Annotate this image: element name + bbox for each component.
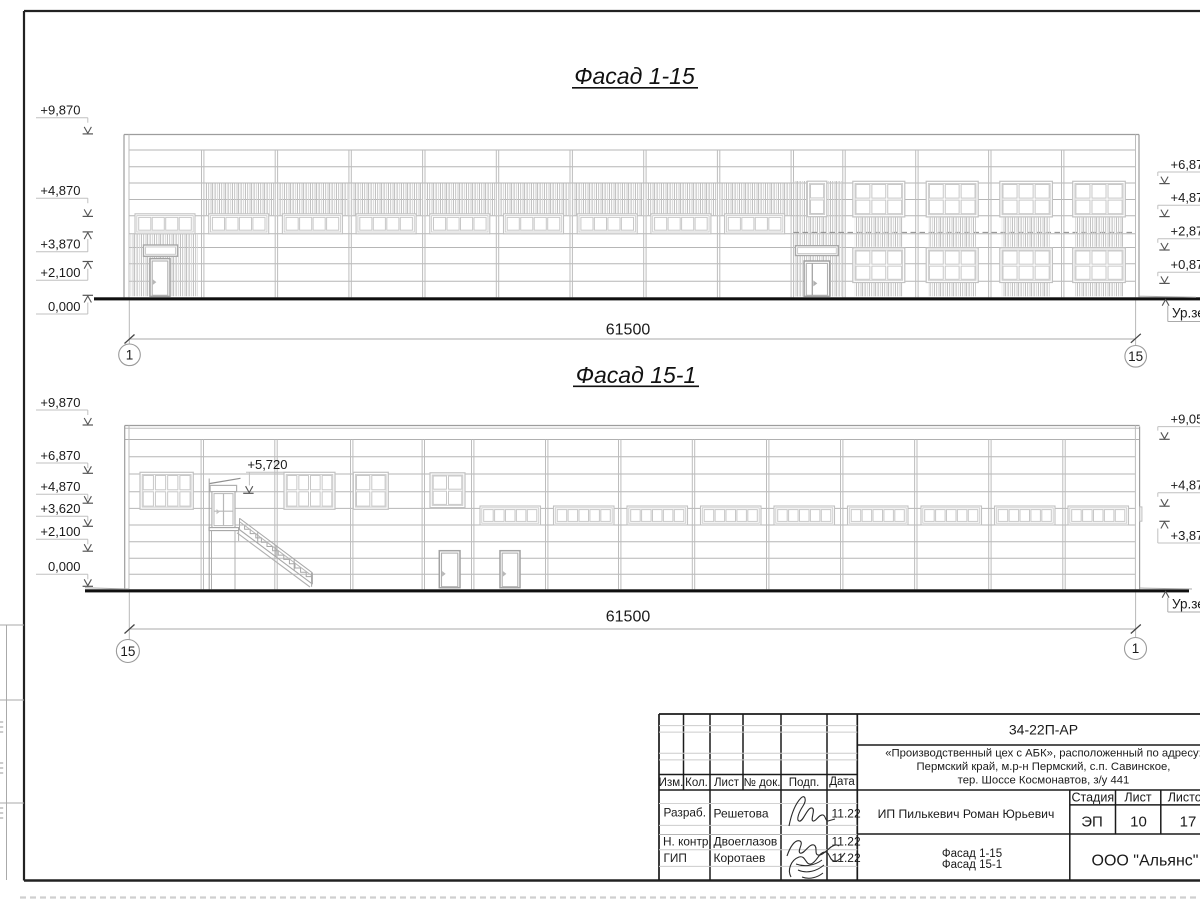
svg-text:Кол.: Кол.	[685, 777, 708, 789]
svg-text:+9,870: +9,870	[40, 395, 80, 410]
svg-text:+4,870: +4,870	[40, 183, 80, 198]
svg-text:+4,87: +4,87	[1171, 478, 1200, 493]
svg-text:Ур.зе: Ур.зе	[1172, 597, 1200, 612]
svg-text:Фасад 15-1: Фасад 15-1	[942, 859, 1002, 871]
svg-text:Фасад 1-15: Фасад 1-15	[574, 63, 695, 89]
svg-text:Дата: Дата	[829, 776, 855, 788]
svg-text:Н. контр.: Н. контр.	[663, 835, 712, 849]
svg-text:61500: 61500	[606, 322, 651, 339]
svg-text:ИП Пилькевич Роман Юрьевич: ИП Пилькевич Роман Юрьевич	[878, 807, 1055, 821]
svg-text:+6,870: +6,870	[40, 448, 80, 463]
svg-text:+2,100: +2,100	[40, 265, 80, 280]
svg-text:+3,620: +3,620	[40, 501, 80, 516]
svg-text:Пермский край, м.р-н Пермский,: Пермский край, м.р-н Пермский, с.п. Сави…	[917, 761, 1171, 773]
svg-text:10: 10	[1130, 814, 1147, 831]
svg-text:Ур.зе: Ур.зе	[1172, 306, 1200, 321]
svg-text:1: 1	[126, 348, 134, 363]
svg-text:ГИП: ГИП	[664, 851, 687, 865]
svg-text:17: 17	[1180, 814, 1197, 831]
svg-text:11.22: 11.22	[832, 835, 861, 849]
svg-text:0,000: 0,000	[48, 299, 81, 314]
svg-text:Двоеглазов: Двоеглазов	[714, 835, 778, 849]
svg-text:+2,87: +2,87	[1171, 224, 1200, 239]
svg-text:1: 1	[1132, 641, 1140, 656]
svg-text:+5,720: +5,720	[247, 457, 287, 472]
svg-text:Фасад 1-15: Фасад 1-15	[942, 848, 1002, 860]
svg-text:15: 15	[120, 644, 135, 659]
svg-text:34-22П-АР: 34-22П-АР	[1009, 722, 1078, 738]
svg-text:+9,870: +9,870	[40, 103, 80, 118]
svg-text:15: 15	[1128, 349, 1143, 364]
svg-text:+6,87: +6,87	[1171, 157, 1200, 172]
svg-text:+4,870: +4,870	[40, 479, 80, 494]
svg-text:Лист: Лист	[1124, 791, 1151, 805]
svg-text:ООО "Альянс": ООО "Альянс"	[1092, 853, 1199, 870]
svg-text:тер. Шоссе Космонавтов, з/у 44: тер. Шоссе Космонавтов, з/у 441	[958, 775, 1130, 787]
svg-text:Разраб.: Разраб.	[664, 806, 706, 820]
svg-text:+9,05: +9,05	[1171, 411, 1200, 426]
svg-text:61500: 61500	[606, 609, 651, 626]
svg-text:+3,87: +3,87	[1171, 528, 1200, 543]
svg-text:ЭП: ЭП	[1081, 814, 1103, 831]
svg-text:Коротаев: Коротаев	[714, 851, 766, 865]
svg-text:Листов: Листов	[1168, 791, 1200, 805]
svg-text:+2,100: +2,100	[40, 524, 80, 539]
svg-text:Стадия: Стадия	[1071, 791, 1114, 805]
svg-text:№ док.: № док.	[744, 777, 781, 789]
svg-text:+3,870: +3,870	[40, 237, 80, 252]
svg-text:+0,87: +0,87	[1171, 257, 1200, 272]
svg-text:11.22: 11.22	[832, 807, 861, 821]
svg-text:Фасад 15-1: Фасад 15-1	[576, 362, 697, 388]
svg-text:«Производственный цех с АБК»,: «Производственный цех с АБК», расположен…	[885, 748, 1200, 760]
svg-text:11.22: 11.22	[832, 851, 861, 865]
svg-text:Решетова: Решетова	[714, 807, 769, 821]
svg-text:+4,87: +4,87	[1171, 190, 1200, 205]
svg-text:Изм.: Изм.	[659, 777, 684, 789]
svg-text:0,000: 0,000	[48, 559, 81, 574]
svg-text:Лист: Лист	[714, 777, 740, 789]
svg-text:Подп.: Подп.	[789, 777, 820, 789]
